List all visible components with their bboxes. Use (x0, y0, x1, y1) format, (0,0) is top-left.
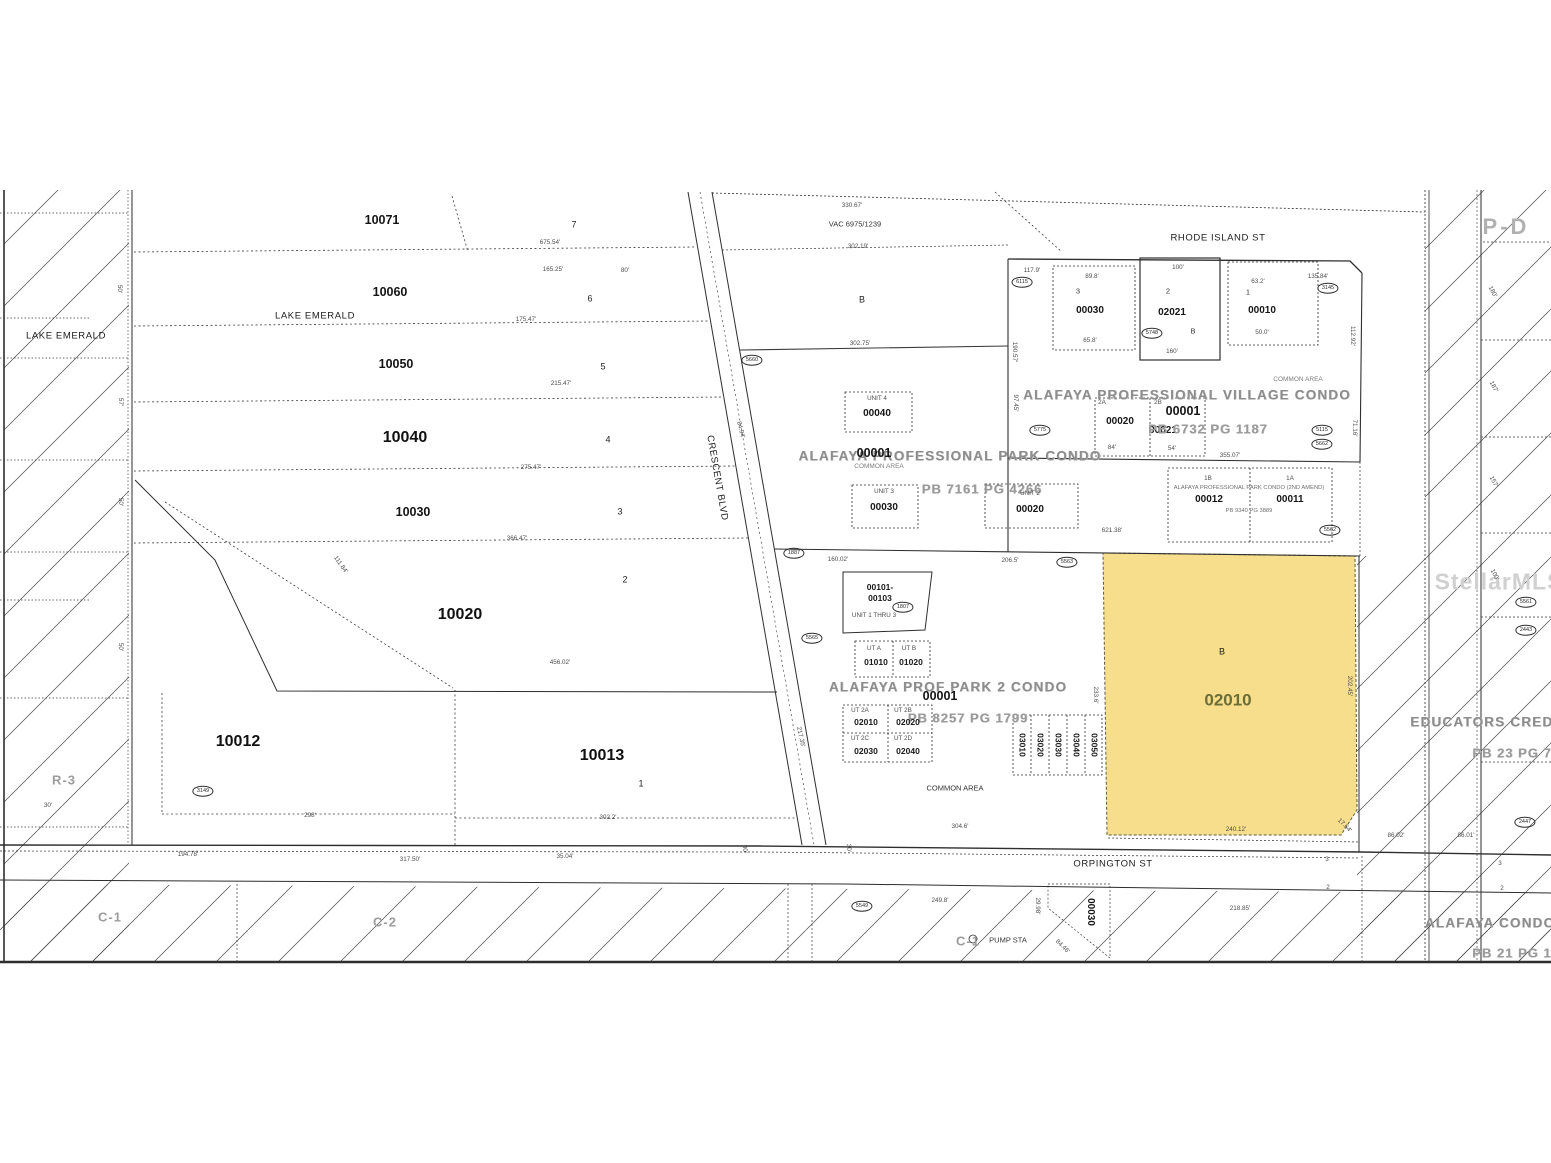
map-label: 100' (1172, 265, 1184, 271)
map-label: 233.6' (1092, 687, 1098, 704)
map-label: 97.45' (1012, 395, 1018, 412)
parcel-ref-circle: 5549 (851, 901, 872, 912)
map-label: 456.02' (550, 660, 570, 666)
map-label: COMMON AREA (1273, 377, 1322, 384)
map-label: 1A (1286, 476, 1294, 482)
map-label: 621.38' (1102, 528, 1122, 534)
parcel-10020: 10020 (438, 607, 483, 623)
map-label: 2 (1166, 287, 1170, 295)
map-label: 190.57' (1011, 342, 1017, 362)
map-label: B (1190, 327, 1195, 335)
lake-emerald-row: LAKE EMERALD (275, 311, 355, 321)
map-label: 240.12' (1226, 827, 1246, 833)
map-label: 35.04' (557, 854, 574, 860)
parcel-10040: 10040 (383, 430, 428, 446)
map-label: UT A (867, 646, 881, 652)
unit-00020-park: 00020 (1016, 505, 1044, 515)
map-label: 50' (117, 498, 123, 506)
map-label: 2 (1500, 886, 1504, 892)
map-label: 135.84' (1308, 274, 1328, 280)
unit-00030-bottom: 00030 (1085, 898, 1095, 926)
unit-03010: 03010 (1018, 733, 1027, 757)
map-label: 63.2' (1251, 279, 1264, 285)
map-label: UT 2A (851, 708, 869, 714)
map-label: 2 (1326, 885, 1330, 891)
map-label: UNIT 1 THRU 3 (852, 613, 896, 619)
highlighted-parcel-label: 02010 (1204, 692, 1251, 709)
map-label: 71.16' (1351, 420, 1357, 437)
map-label: 675.54' (540, 240, 560, 246)
map-label: 3 (1076, 287, 1080, 295)
map-label: 6 (587, 295, 592, 304)
map-label: 4 (605, 436, 610, 445)
street-crescent-blvd: CRESCENT BLVD (705, 435, 729, 522)
map-label: UNIT 4 (867, 396, 887, 402)
unit-00020-village: 00020 (1106, 417, 1134, 427)
unit-02030: 02030 (854, 747, 878, 756)
map-label: PB 23 PG 7 (1472, 747, 1551, 760)
map-label: 175.47' (516, 317, 536, 323)
unit-00011: 00011 (1276, 495, 1303, 505)
unit-00012: 00012 (1195, 495, 1223, 505)
map-label: 80' (621, 268, 629, 274)
village-condo-plat-ref: PB 6732 PG 1187 (1148, 423, 1268, 436)
parcel-ref-circle: 5115 (1312, 425, 1333, 436)
unit-03040: 03040 (1072, 733, 1081, 757)
unit-02010-sm: 02010 (854, 718, 878, 727)
parcel-ref-circle: 5561 (1515, 597, 1536, 608)
map-label: 1 (638, 780, 643, 789)
map-label: 57' (117, 398, 123, 406)
unit-01020: 01020 (899, 658, 923, 667)
map-label: 202.45' (1346, 676, 1352, 696)
map-label: 330.67' (842, 203, 862, 209)
unit-00010: 00010 (1248, 306, 1276, 316)
map-label: 5 (600, 363, 605, 372)
unit-03020: 03020 (1036, 733, 1045, 757)
map-label: 1B (1204, 476, 1212, 482)
map-label: 3 (1498, 861, 1502, 867)
map-label: 215.47' (551, 381, 571, 387)
map-label: 84.46' (1054, 939, 1070, 955)
unit-02040: 02040 (896, 747, 920, 756)
map-label: 355.07' (1220, 453, 1240, 459)
map-label: PB 21 PG 18 (1472, 947, 1551, 960)
map-label: 00101- (867, 583, 893, 592)
parcel-ref-circle: 3145 (1317, 283, 1338, 294)
map-label: 302.19' (848, 244, 868, 250)
parcel-ref-circle: 1887 (783, 548, 804, 559)
map-label: 2 (622, 576, 627, 585)
map-label: 157' (1487, 475, 1498, 488)
map-label: 111.84' (332, 555, 348, 575)
parcel-10071: 10071 (365, 214, 400, 227)
map-label: COMMON AREA (926, 784, 983, 792)
zone-c1-mid: C-1 (956, 935, 980, 948)
prof-park-2-plat-ref: PB 8257 PG 1799 (908, 712, 1029, 725)
map-label: 187' (1487, 380, 1498, 393)
map-label: 50' (116, 285, 122, 293)
map-label: 17.64' (1336, 818, 1352, 834)
map-label: 00001 (857, 447, 892, 460)
unit-02021: 02021 (1158, 308, 1186, 318)
map-label: UT 2D (894, 736, 912, 742)
parcel-10013: 10013 (580, 748, 625, 764)
map-label: 84' (1108, 445, 1116, 451)
pump-station-label: PUMP STA (989, 936, 1027, 944)
map-label: 1 (1246, 288, 1250, 296)
highlighted-parcel-block: B (1219, 648, 1225, 657)
map-label: 160' (1166, 349, 1178, 355)
map-label: 65.8' (1083, 338, 1096, 344)
map-label: VAC 6975/1239 (829, 220, 881, 228)
zone-c1-left: C-1 (98, 911, 122, 924)
map-label: 366.47' (507, 536, 527, 542)
map-label: UNIT 2 (1020, 491, 1040, 497)
map-label: 30' (741, 845, 748, 854)
map-label: 84.94' (735, 421, 745, 439)
map-label: 3 (617, 508, 622, 517)
map-label: 2A (1098, 400, 1106, 406)
zone-c2: C-2 (373, 916, 397, 929)
map-label: 3 (1325, 857, 1329, 863)
map-label: 54' (1168, 446, 1176, 452)
map-label: COMMON AREA (854, 464, 903, 471)
map-label: PB 9340 PG 3889 (1226, 509, 1273, 515)
lake-emerald-left: LAKE EMERALD (26, 331, 106, 341)
map-label: 317.50' (400, 857, 420, 863)
map-label: 86.01' (1458, 833, 1475, 839)
map-label: UNIT 3 (874, 489, 894, 495)
parcel-ref-circle: 5662 (1311, 439, 1332, 450)
map-label: 206.5' (1002, 558, 1019, 564)
unit-00040: 00040 (863, 409, 891, 419)
map-label: 302.2' (600, 815, 617, 821)
parcel-ref-circle: 2443 (1515, 625, 1536, 636)
map-label: 112.92' (1349, 326, 1355, 346)
unit-00030-village: 00030 (1076, 306, 1104, 316)
map-label: 249.8' (932, 898, 949, 904)
map-label: 298' (304, 813, 316, 819)
unit-00030-park: 00030 (870, 503, 898, 513)
park-condo-title: ALAFAYA PROFESSIONAL PARK CONDO (799, 449, 1102, 463)
map-label: 30' (44, 803, 52, 809)
village-condo-title: ALAFAYA PROFESSIONAL VILLAGE CONDO (1023, 388, 1351, 402)
map-label: 180' (1486, 285, 1497, 298)
map-label: 302.75' (850, 341, 870, 347)
map-label: 2B (1154, 400, 1162, 406)
parcel-ref-circle: 3149 (192, 786, 213, 797)
map-label: 50.0' (1255, 330, 1268, 336)
unit-01010: 01010 (864, 658, 888, 667)
map-label: B (859, 296, 865, 305)
map-label: UT B (902, 646, 916, 652)
map-label: 89.8' (1085, 274, 1098, 280)
parcel-ref-circle: 2447 (1514, 817, 1535, 828)
map-label: 30' (845, 844, 852, 853)
map-label: 304.6' (952, 824, 969, 830)
map-label: 29.98' (1034, 898, 1040, 915)
unit-03050: 03050 (1090, 733, 1099, 757)
educators-credit-label: EDUCATORS CREDIT (1410, 715, 1551, 729)
unit-00101-00103: 00103 (868, 594, 892, 603)
map-label: UT 2B (894, 708, 912, 714)
alafaya-condo-label: ALAFAYA CONDO (1425, 916, 1551, 930)
map-label: 160.02' (828, 557, 848, 563)
parcel-ref-circle: 5565 (801, 633, 822, 644)
map-label: 00001 (923, 690, 958, 703)
parcel-ref-circle: 1807 (892, 602, 913, 613)
parcel-ref-circle: 5660 (741, 355, 762, 366)
map-label: 50' (117, 643, 123, 651)
map-label: 218.85' (1230, 906, 1250, 912)
map-label: 194.78' (178, 852, 198, 858)
plat-map: RHODE ISLAND STCRESCENT BLVDORPINGTON ST… (0, 0, 1551, 1163)
map-label: 275.47' (521, 465, 541, 471)
parcel-ref-circle: 6115 (1012, 277, 1033, 288)
map-label: 117.9' (1024, 268, 1041, 274)
park-condo-2nd-amend-title: ALAFAYA PROFESSIONAL PARK CONDO (2ND AME… (1174, 486, 1325, 492)
zone-pd: P-D (1483, 216, 1530, 238)
map-label: UT 2C (851, 736, 869, 742)
parcel-ref-circle: 5562 (1319, 525, 1340, 536)
map-label: 7 (571, 221, 576, 230)
map-label: 86.02' (1388, 833, 1405, 839)
unit-03030: 03030 (1054, 733, 1063, 757)
parcel-ref-circle: 5775 (1029, 425, 1050, 436)
parcel-10060: 10060 (373, 286, 408, 299)
map-label: 00001 (1166, 405, 1201, 418)
map-label: 217.35' (795, 726, 805, 747)
parcel-ref-circle: 5748 (1141, 328, 1162, 339)
map-labels-layer: RHODE ISLAND STCRESCENT BLVDORPINGTON ST… (0, 0, 1551, 1163)
parcel-10030: 10030 (396, 506, 431, 519)
parcel-10050: 10050 (379, 358, 414, 371)
map-label: 165.25' (543, 267, 563, 273)
street-rhode-island: RHODE ISLAND ST (1170, 233, 1265, 243)
street-orpington: ORPINGTON ST (1073, 859, 1152, 869)
zone-r3: R-3 (52, 774, 76, 787)
parcel-ref-circle: 5563 (1056, 557, 1077, 568)
unit-02020: 02020 (896, 718, 920, 727)
parcel-10012: 10012 (216, 734, 261, 750)
